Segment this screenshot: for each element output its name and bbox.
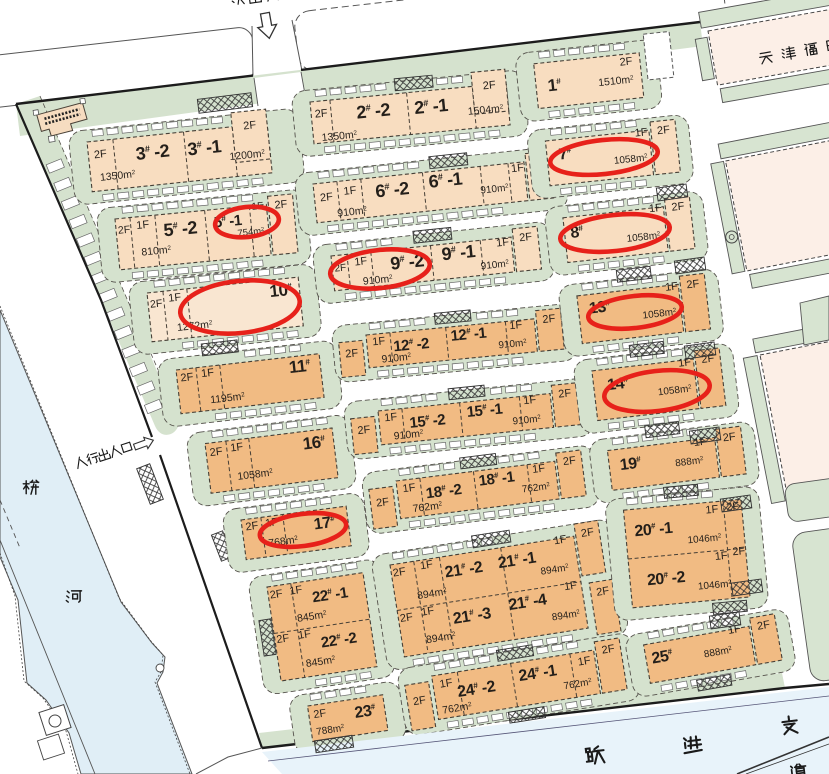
svg-text:6# -1: 6# -1 bbox=[428, 168, 464, 191]
svg-text:2F: 2F bbox=[269, 588, 284, 602]
svg-text:2F: 2F bbox=[519, 231, 533, 244]
svg-text:2F: 2F bbox=[558, 387, 572, 400]
svg-text:1F: 1F bbox=[714, 550, 728, 563]
svg-text:2F: 2F bbox=[601, 643, 616, 657]
svg-text:1F: 1F bbox=[648, 202, 662, 215]
svg-text:2F: 2F bbox=[149, 297, 162, 310]
svg-text:1F: 1F bbox=[563, 579, 578, 593]
svg-text:1F: 1F bbox=[553, 533, 568, 547]
svg-text:2F: 2F bbox=[562, 455, 577, 469]
svg-text:1F: 1F bbox=[354, 255, 368, 268]
svg-text:2F: 2F bbox=[392, 566, 407, 580]
svg-text:1F: 1F bbox=[420, 605, 435, 619]
svg-text:1F: 1F bbox=[510, 162, 524, 175]
svg-text:1F: 1F bbox=[230, 441, 244, 455]
svg-text:2F: 2F bbox=[732, 545, 746, 558]
svg-text:1F: 1F bbox=[168, 291, 182, 304]
svg-text:1F: 1F bbox=[705, 503, 719, 516]
svg-text:1F: 1F bbox=[634, 126, 648, 139]
svg-text:2F: 2F bbox=[274, 198, 288, 211]
svg-text:2# -1: 2# -1 bbox=[413, 95, 449, 118]
svg-text:2F: 2F bbox=[93, 148, 107, 161]
svg-text:2F: 2F bbox=[276, 632, 291, 646]
svg-text:1F: 1F bbox=[201, 367, 215, 380]
svg-text:2F: 2F bbox=[117, 224, 130, 237]
svg-text:1F: 1F bbox=[343, 185, 357, 198]
svg-text:2F: 2F bbox=[671, 200, 685, 213]
svg-text:2F: 2F bbox=[209, 446, 223, 460]
svg-text:2F: 2F bbox=[656, 124, 670, 137]
svg-text:1F: 1F bbox=[523, 394, 537, 407]
svg-text:2F: 2F bbox=[319, 191, 333, 204]
svg-text:2F: 2F bbox=[243, 119, 257, 132]
svg-text:6# -2: 6# -2 bbox=[374, 178, 410, 201]
svg-text:1F: 1F bbox=[577, 655, 592, 669]
svg-text:1F: 1F bbox=[136, 219, 150, 232]
svg-text:3# -1: 3# -1 bbox=[187, 136, 223, 159]
svg-text:2F: 2F bbox=[345, 347, 359, 360]
svg-text:3# -2: 3# -2 bbox=[135, 140, 171, 163]
svg-text:2F: 2F bbox=[619, 55, 633, 68]
svg-text:1F: 1F bbox=[372, 335, 386, 348]
svg-text:2F: 2F bbox=[313, 707, 328, 721]
svg-text:1F: 1F bbox=[402, 482, 417, 496]
svg-text:2F: 2F bbox=[180, 371, 194, 384]
svg-text:2F: 2F bbox=[412, 694, 427, 708]
svg-text:2F: 2F bbox=[314, 107, 328, 120]
svg-text:5# -2: 5# -2 bbox=[163, 217, 199, 240]
svg-text:2F: 2F bbox=[686, 278, 700, 291]
svg-text:2F: 2F bbox=[375, 496, 390, 510]
svg-text:1F: 1F bbox=[532, 462, 547, 476]
svg-text:2F: 2F bbox=[482, 79, 496, 92]
svg-text:1F: 1F bbox=[384, 411, 398, 424]
svg-text:1F: 1F bbox=[439, 677, 454, 691]
svg-text:2F: 2F bbox=[595, 585, 610, 599]
svg-text:2F: 2F bbox=[245, 520, 260, 534]
svg-text:2F: 2F bbox=[399, 611, 414, 625]
svg-text:2F: 2F bbox=[722, 431, 736, 445]
svg-text:9# -1: 9# -1 bbox=[441, 241, 477, 264]
svg-text:1F: 1F bbox=[289, 584, 304, 598]
svg-text:2# -2: 2# -2 bbox=[355, 99, 391, 122]
svg-text:1F: 1F bbox=[664, 280, 678, 293]
svg-text:1F: 1F bbox=[496, 236, 510, 249]
svg-text:2F: 2F bbox=[580, 526, 595, 540]
svg-text:1F: 1F bbox=[297, 628, 312, 642]
svg-text:1F: 1F bbox=[509, 319, 523, 332]
svg-text:2F: 2F bbox=[542, 313, 556, 326]
svg-text:2F: 2F bbox=[756, 619, 771, 633]
svg-text:2F: 2F bbox=[357, 424, 371, 437]
svg-text:1F: 1F bbox=[419, 558, 434, 572]
